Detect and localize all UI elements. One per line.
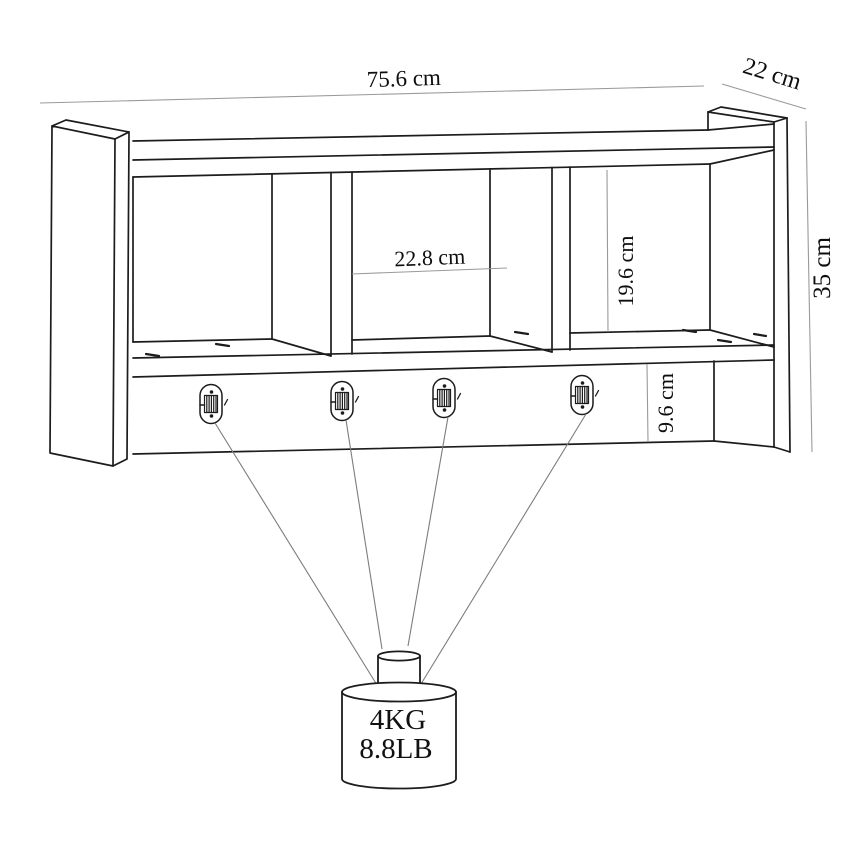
leader-line-hook-3 <box>408 417 448 646</box>
hook-grille-bars <box>440 390 449 407</box>
dimension-compartment-height: 19.6 cm <box>607 170 638 332</box>
hook-screw-bottom <box>581 405 585 409</box>
top-shelf-front-bottom-edge <box>133 164 710 177</box>
hook-4 <box>571 376 599 415</box>
leader-line-hook-4 <box>421 414 586 684</box>
hook-2 <box>331 382 359 421</box>
hook-3 <box>433 379 461 418</box>
weight-capacity-figure: 4KG 8.8LB <box>342 651 456 788</box>
hook-screw-top <box>341 387 345 391</box>
screw-mark <box>216 344 229 346</box>
hook-screw-top <box>443 384 447 388</box>
dimension-overall-depth: 22 cm <box>722 53 806 109</box>
left-panel-front-face <box>50 126 115 466</box>
compartment-width-label: 22.8 cm <box>394 244 466 272</box>
hook-screw-top <box>210 390 214 394</box>
hooks <box>200 376 599 424</box>
hook-grille-bars <box>578 387 587 404</box>
weight-lb-label: 8.8LB <box>359 733 432 765</box>
overall-depth-label: 22 cm <box>740 53 805 95</box>
right-side-panel <box>708 107 790 452</box>
leader-line-hook-2 <box>346 420 382 649</box>
rail-height-label: 9.6 cm <box>653 373 678 433</box>
hook-screw-bottom <box>341 411 345 415</box>
upstand-top-right-edge <box>774 118 787 122</box>
hook-grille-bars <box>207 396 216 413</box>
hook-tick-mark <box>596 391 599 397</box>
compartment-1-floor-back-edge <box>133 339 272 342</box>
screw-mark <box>754 334 766 336</box>
dimension-overall-width: 75.6 cm <box>40 65 704 103</box>
compartment-height-dimension-line <box>607 170 608 332</box>
rail-height-dimension-line <box>647 364 648 442</box>
hook-tick-mark <box>356 397 359 403</box>
weight-kg-label: 4KG <box>370 704 426 736</box>
top-shelf-back-edge <box>133 130 708 141</box>
dimension-rail-height: 9.6 cm <box>647 364 678 442</box>
wall-shelf-dimension-diagram: 4KG 8.8LB 75.6 cm 22 cm 35 cm 22.8 cm 19… <box>0 0 868 868</box>
right-panel-outer-edge <box>787 118 790 452</box>
hook-screw-bottom <box>443 408 447 412</box>
hook-tick-mark <box>458 394 461 400</box>
hook-screw-top <box>581 381 585 385</box>
rail-bottom-edge <box>133 441 714 454</box>
hook-tick-mark <box>225 400 228 406</box>
compartment-height-label: 19.6 cm <box>613 236 638 307</box>
left-side-panel <box>50 120 129 466</box>
dimension-overall-height: 35 cm <box>806 121 836 452</box>
top-shelf-front-top-edge <box>133 147 774 160</box>
compartment-2-floor-back-edge <box>352 336 490 340</box>
screw-mark <box>146 354 159 356</box>
hook-1 <box>200 385 228 424</box>
dimension-compartment-width: 22.8 cm <box>352 244 507 274</box>
technical-drawing-canvas: 4KG 8.8LB 75.6 cm 22 cm 35 cm 22.8 cm 19… <box>0 0 868 868</box>
overall-height-label: 35 cm <box>809 237 836 299</box>
hook-screw-bottom <box>210 414 214 418</box>
top-inner-corner-diagonal <box>710 150 774 164</box>
screw-mark <box>515 332 528 334</box>
hook-grille-bars <box>338 393 347 410</box>
shelf-body <box>50 107 790 466</box>
upstand-top-back-edge <box>708 107 787 118</box>
overall-width-label: 75.6 cm <box>366 65 441 92</box>
screw-mark <box>718 340 731 342</box>
bottom-shelf <box>133 345 774 377</box>
weight-knob-top <box>378 651 420 660</box>
right-panel-bottom-edge <box>774 447 790 452</box>
rail-end-diagonal <box>714 441 774 447</box>
weight-leader-lines <box>215 414 586 685</box>
upstand-bottom-edge <box>708 124 774 130</box>
top-shelf <box>133 130 774 177</box>
